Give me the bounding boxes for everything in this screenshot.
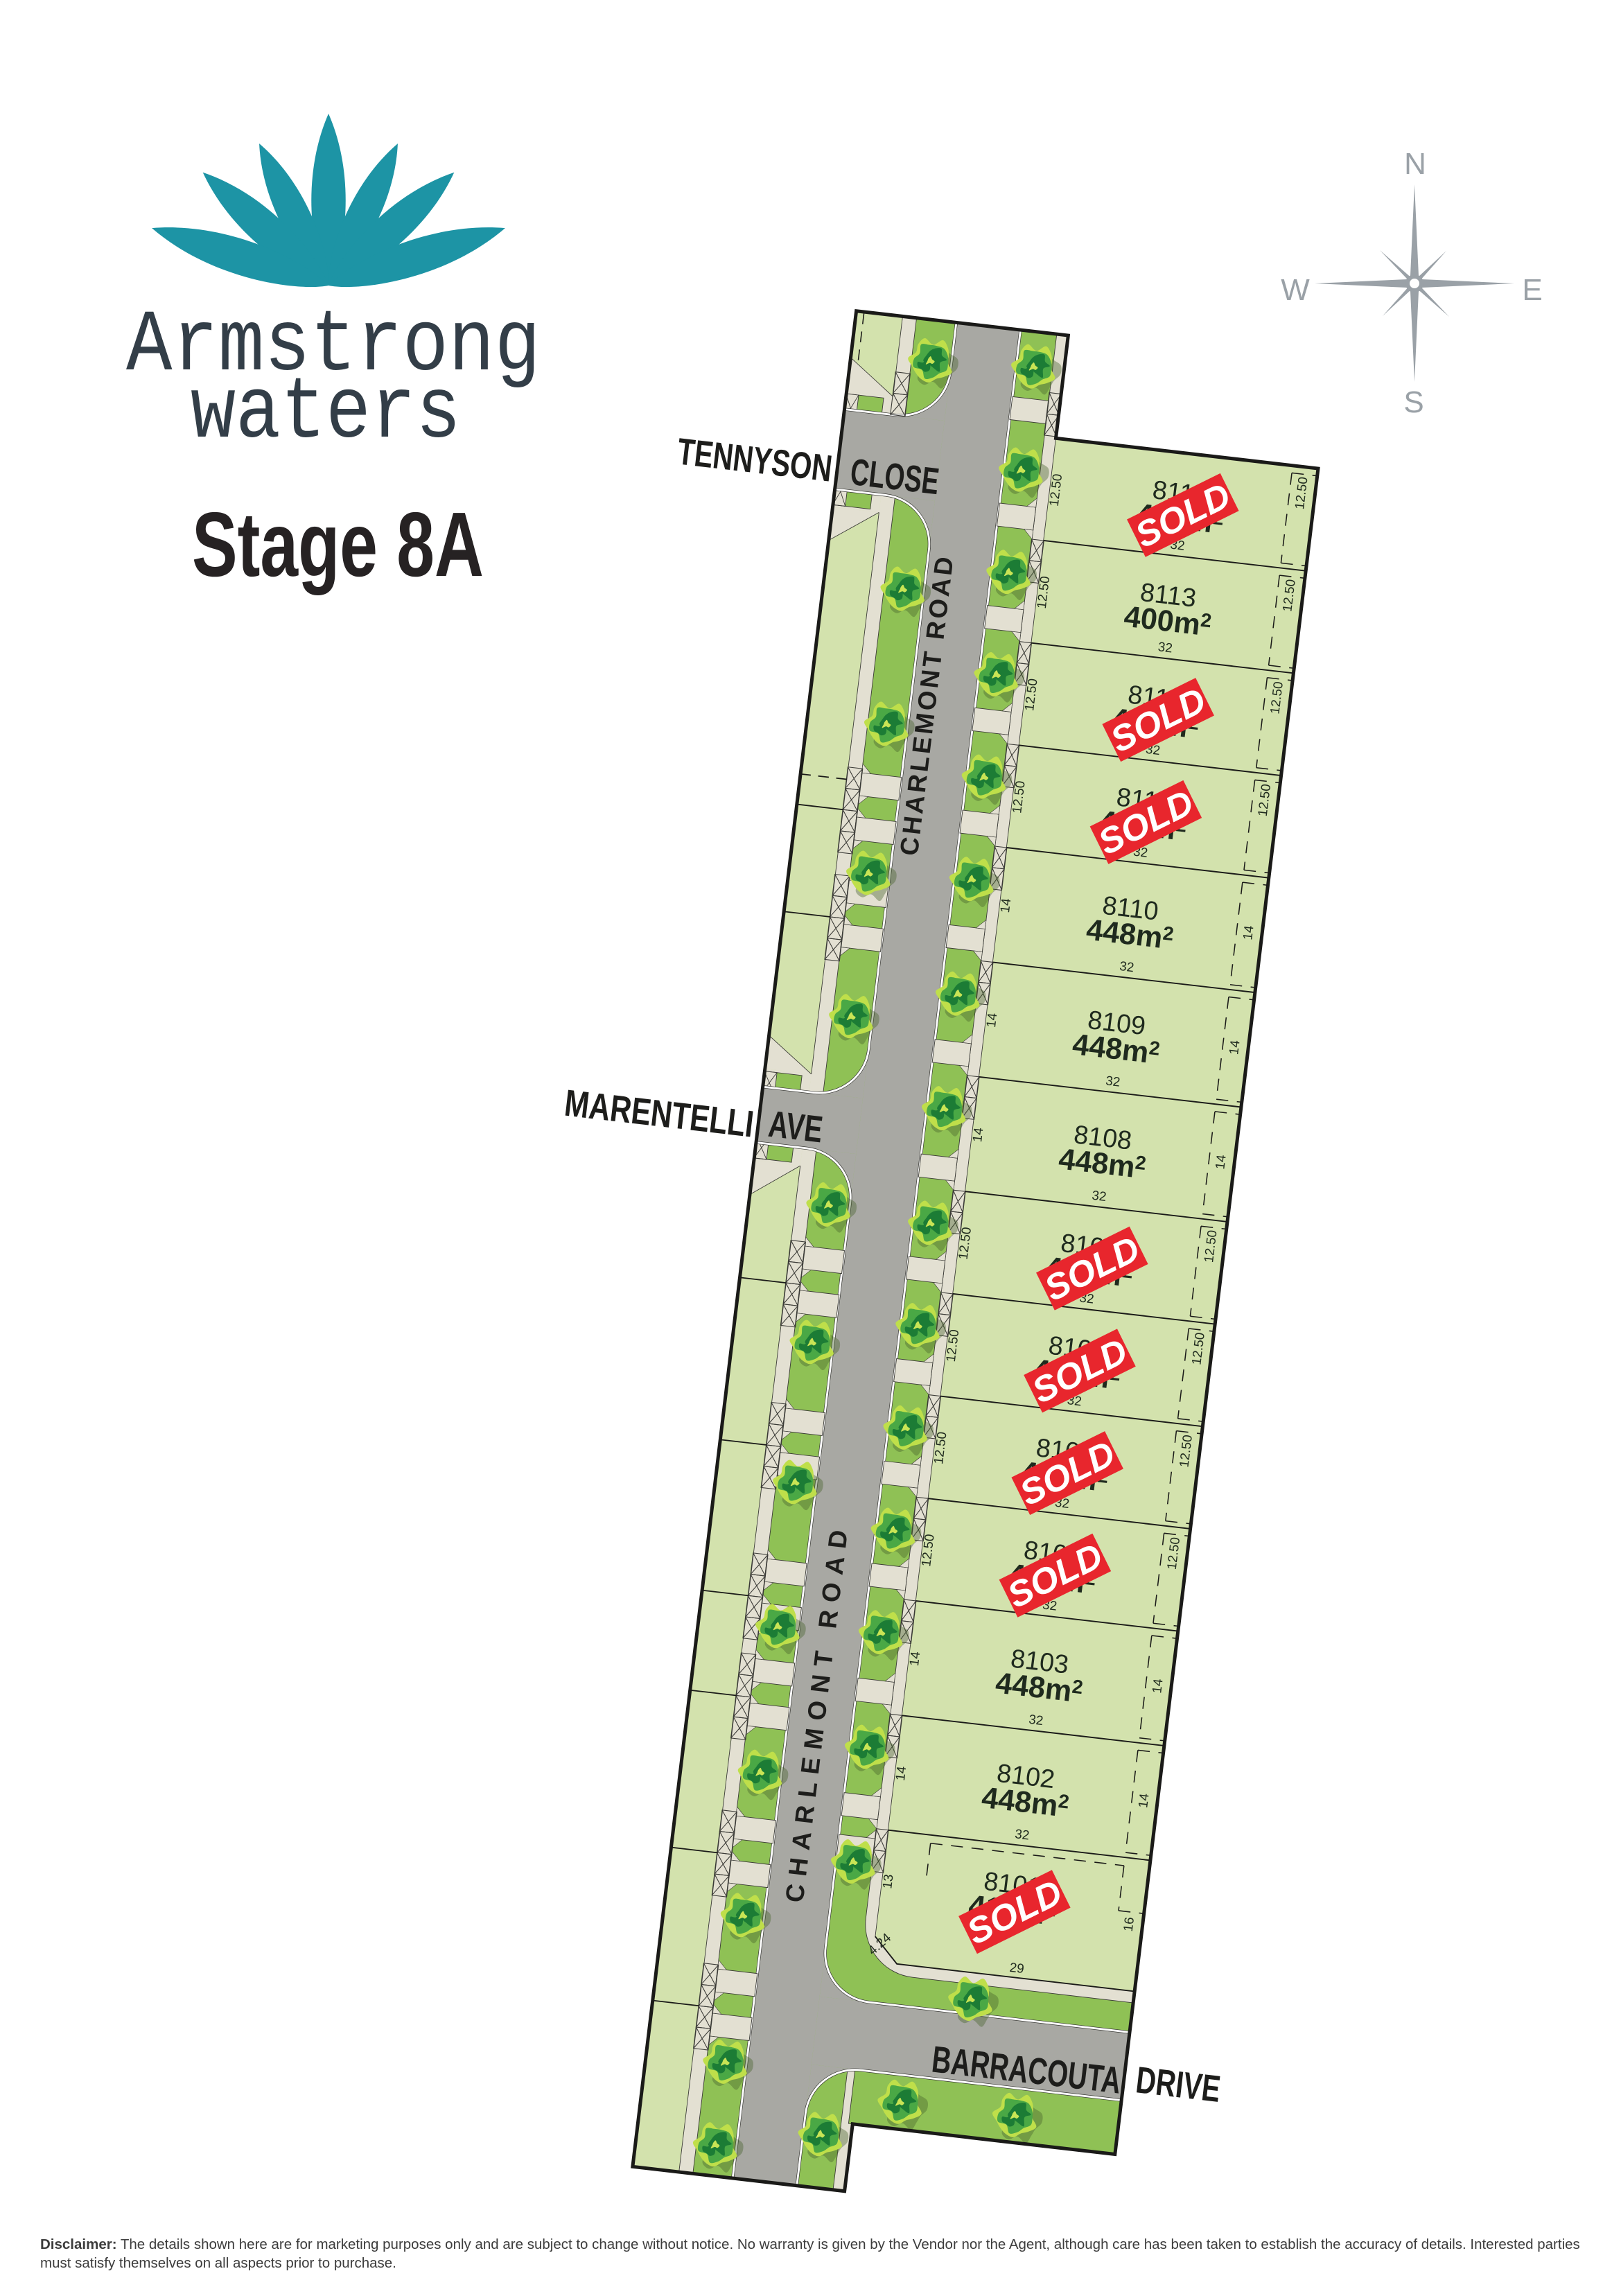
svg-text:W: W bbox=[1281, 273, 1310, 307]
svg-text:AVE: AVE bbox=[766, 1103, 825, 1151]
svg-text:N: N bbox=[1404, 147, 1426, 181]
svg-text:32: 32 bbox=[1091, 1188, 1107, 1204]
svg-text:S: S bbox=[1403, 385, 1423, 419]
svg-text:Disclaimer: The details shown: Disclaimer: The details shown here are f… bbox=[40, 2236, 1580, 2252]
svg-text:14: 14 bbox=[893, 1765, 909, 1781]
svg-text:32: 32 bbox=[1119, 958, 1134, 974]
svg-text:14: 14 bbox=[997, 897, 1013, 913]
svg-text:14: 14 bbox=[906, 1651, 922, 1667]
svg-text:14: 14 bbox=[1212, 1154, 1228, 1170]
svg-text:32: 32 bbox=[1105, 1073, 1121, 1089]
svg-text:29: 29 bbox=[1009, 1960, 1025, 1976]
svg-text:14: 14 bbox=[1149, 1678, 1165, 1694]
svg-text:16: 16 bbox=[1121, 1916, 1137, 1932]
svg-text:E: E bbox=[1522, 273, 1542, 307]
svg-text:waters: waters bbox=[191, 364, 461, 463]
svg-text:14: 14 bbox=[983, 1012, 999, 1028]
svg-text:14: 14 bbox=[1135, 1793, 1151, 1809]
svg-text:Stage 8A: Stage 8A bbox=[192, 493, 484, 595]
svg-text:32: 32 bbox=[1157, 639, 1173, 655]
svg-text:32: 32 bbox=[1028, 1712, 1044, 1728]
svg-text:14: 14 bbox=[970, 1127, 985, 1143]
svg-text:14: 14 bbox=[1226, 1040, 1242, 1055]
svg-text:32: 32 bbox=[1014, 1826, 1030, 1842]
svg-text:13: 13 bbox=[879, 1873, 895, 1889]
svg-text:14: 14 bbox=[1240, 924, 1256, 940]
svg-text:must satisfy themselves on all: must satisfy themselves on all aspects p… bbox=[40, 2255, 396, 2271]
